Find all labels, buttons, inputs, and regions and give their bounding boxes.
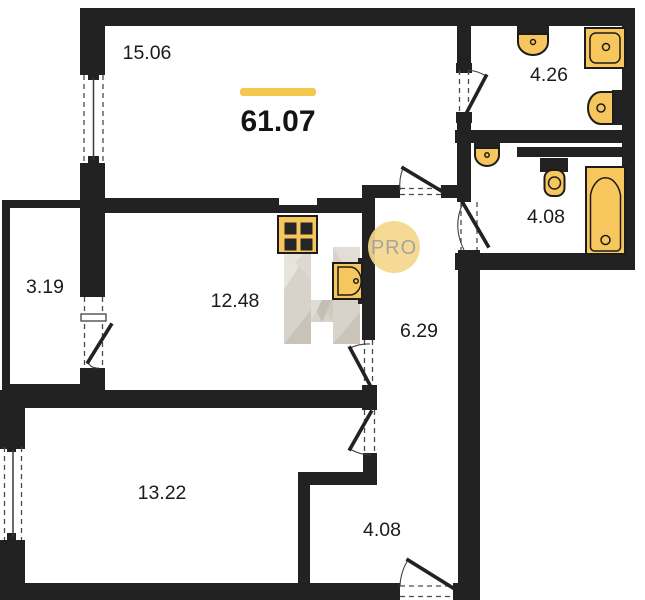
pro-watermark-badge: PRO: [368, 221, 420, 273]
pro-watermark-text: PRO: [371, 237, 417, 259]
accent-divider: [240, 88, 316, 96]
kitchen-area-label: 12.48: [211, 290, 260, 312]
living-area-label: 15.06: [123, 42, 172, 64]
total-area-block: 61.07: [240, 88, 316, 138]
washing-machine-icon: [585, 28, 625, 68]
floor-plan: 15.06 4.26 4.08 3.19 12.48 6.29 13.22 4.…: [0, 0, 645, 600]
kitchen-sink-icon: [333, 258, 375, 304]
floor-plan-drawing: 15.06 4.26 4.08 3.19 12.48 6.29 13.22 4.…: [0, 0, 645, 600]
stove-icon: [278, 216, 317, 253]
wash-basin-top-icon: [517, 26, 549, 55]
toilet-icon: [540, 158, 568, 196]
balcony-area-label: 3.19: [26, 276, 64, 298]
total-area-value: 61.07: [240, 105, 315, 138]
bath-right-area-label: 4.08: [527, 206, 565, 228]
bedroom-area-label: 13.22: [138, 482, 187, 504]
bath-top-area-label: 4.26: [530, 64, 568, 86]
bathtub-icon: [586, 167, 625, 254]
wash-basin-bath-icon: [474, 141, 500, 166]
corridor-area-label: 6.29: [400, 320, 438, 342]
hallway-area-label: 4.08: [363, 519, 401, 541]
wash-basin-right-icon: [588, 92, 613, 124]
